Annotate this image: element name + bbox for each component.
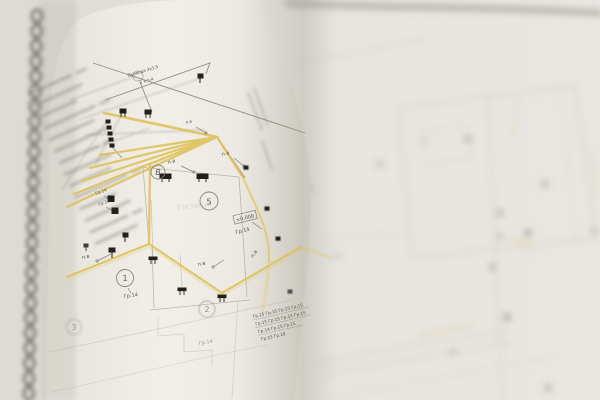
blueprint-photo: В 5 1 2 3 Провода 3х1,5 2 х п.в п.в п.в … bbox=[0, 0, 600, 400]
photo-canvas: В 5 1 2 3 Провода 3х1,5 2 х п.в п.в п.в … bbox=[0, 0, 600, 400]
vignette bbox=[0, 0, 600, 400]
